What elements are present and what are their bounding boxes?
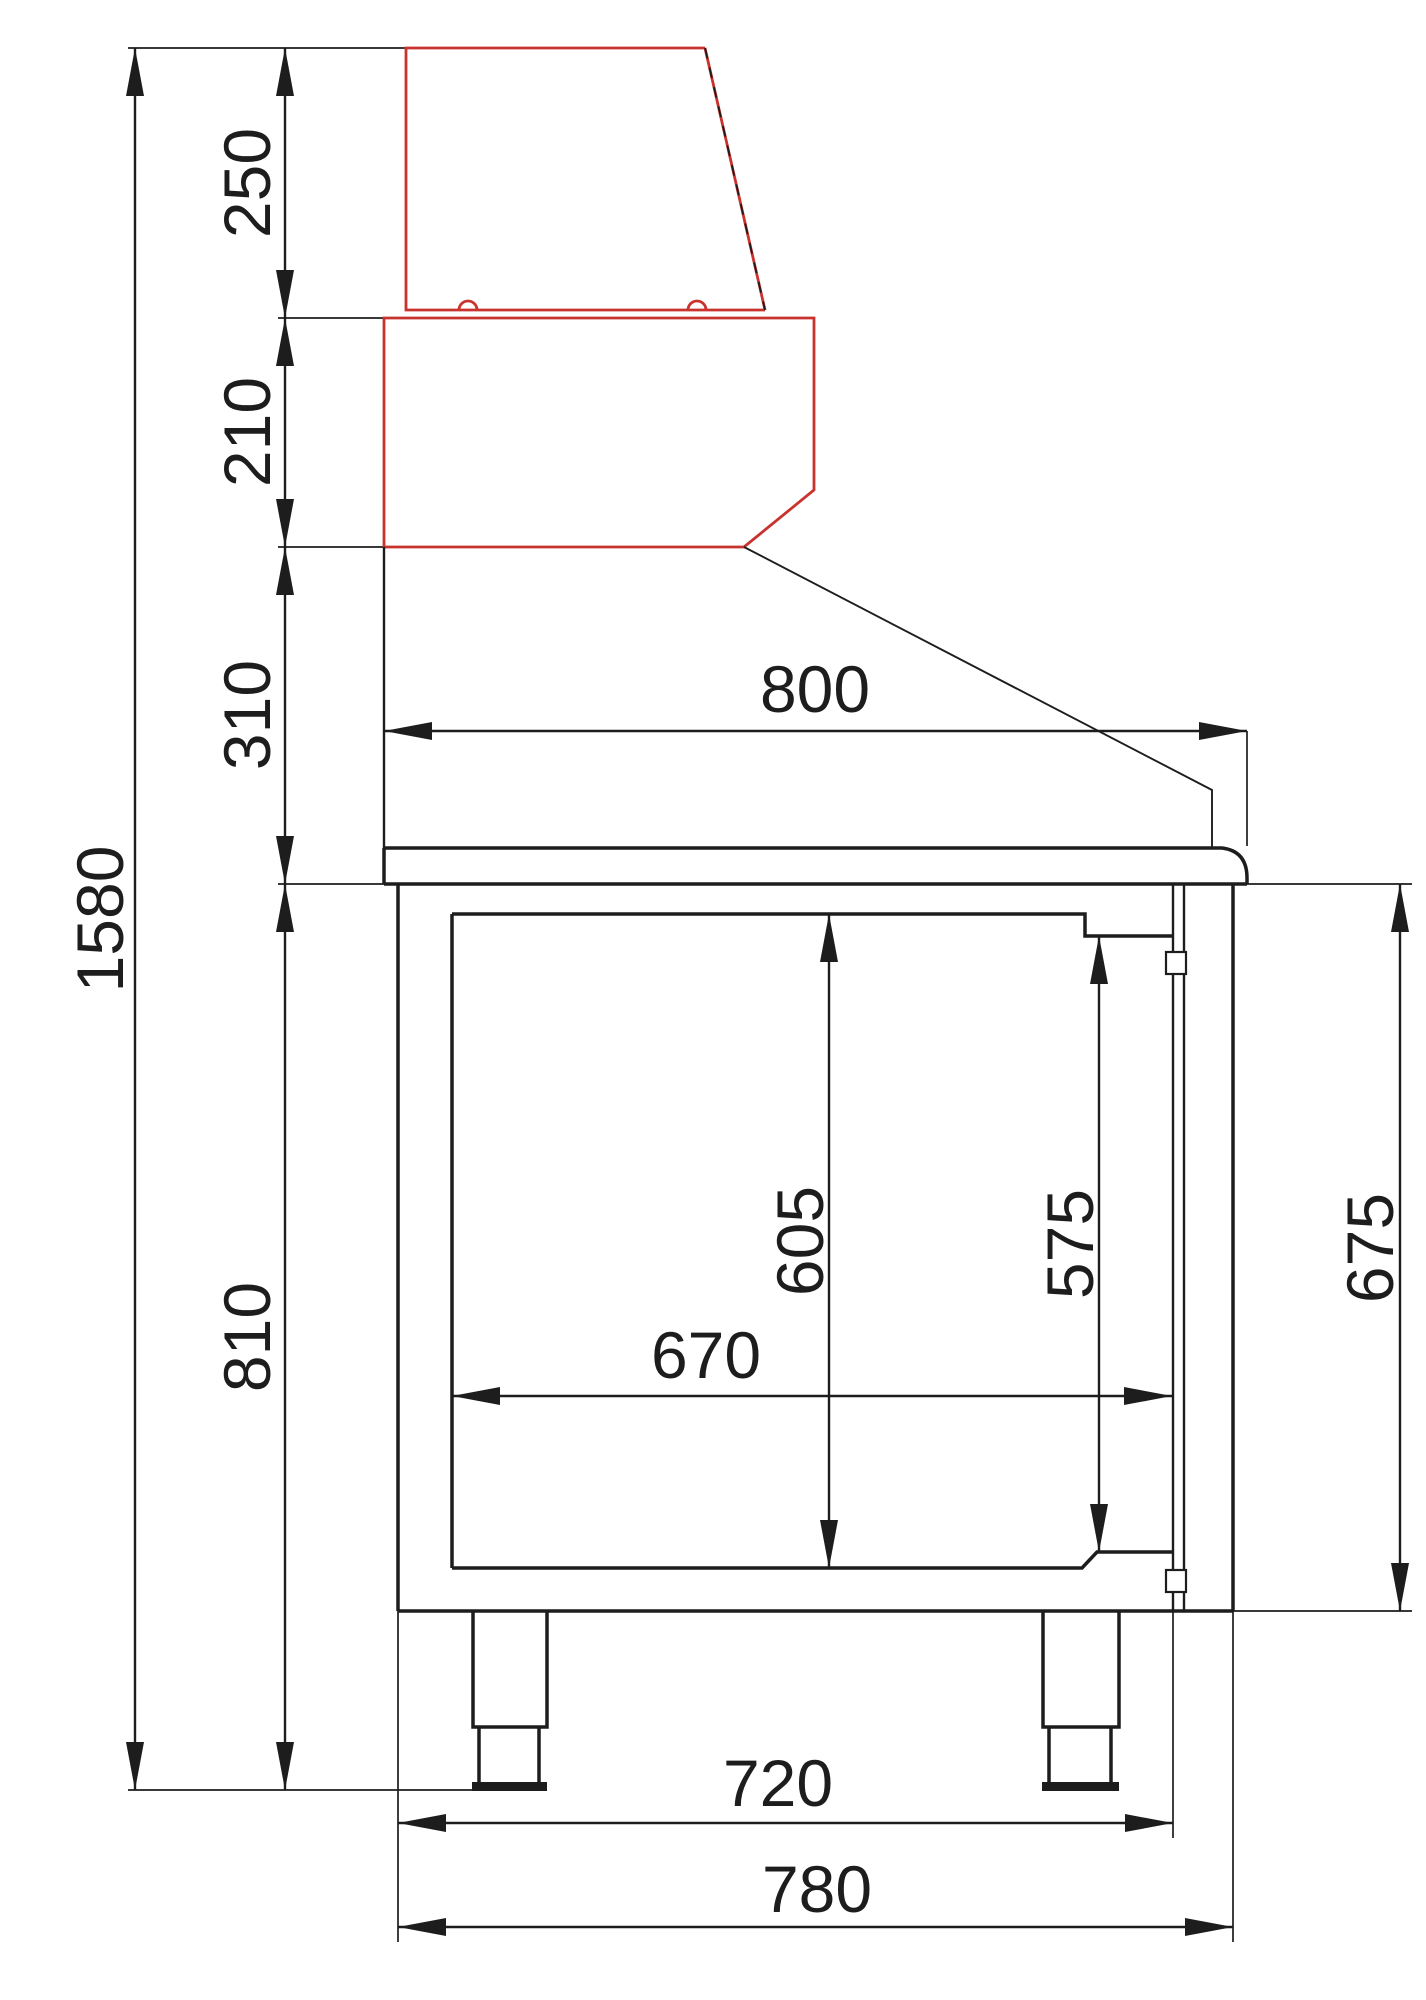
left-leg-base [472,1782,547,1791]
dim-overall-depth-label: 780 [762,1852,872,1926]
dim-pan-rail-height-label: 210 [210,377,284,487]
interior-top [452,914,1172,936]
arrowhead [452,1387,500,1405]
drawing-page: 1580 250 210 310 810 800 605 575 675 670… [0,0,1426,2000]
dim-base-depth-label: 720 [723,1746,833,1820]
arrowhead [126,1742,144,1790]
arrowhead [820,914,838,962]
arrowhead [1199,722,1247,740]
right-leg-upper [1043,1611,1119,1727]
dim-hood-height-label: 250 [210,128,284,238]
dim-interior-height-rear-label: 605 [763,1186,837,1296]
arrowhead [1124,1387,1172,1405]
technical-drawing-canvas: 1580 250 210 310 810 800 605 575 675 670… [0,0,1426,2000]
arrowhead [384,722,432,740]
dim-splashback-height-label: 310 [210,660,284,770]
dim-body-height-label: 810 [210,1282,284,1392]
arrowhead [820,1520,838,1568]
door-hinge-bottom [1166,1570,1186,1592]
right-leg-base [1042,1782,1119,1791]
arrowhead [276,318,294,366]
arrowhead [1185,1918,1233,1936]
arrowhead [276,499,294,547]
extension-lines [128,48,1412,1942]
door-hinge-top [1166,952,1186,974]
dim-overall-height-label: 1580 [63,846,137,993]
dim-interior-height-front-label: 575 [1033,1189,1107,1299]
arrowhead [398,1814,446,1832]
right-leg-foot [1049,1727,1111,1784]
pan-rail-outline [384,318,814,547]
dim-worktop-depth-label: 800 [760,652,870,726]
left-leg-foot [479,1727,539,1784]
dim-door-height-label: 675 [1333,1193,1407,1303]
pan-rail-section [384,318,814,547]
glass-display-hood [406,48,765,310]
arrowhead [1391,884,1409,932]
arrowhead [276,270,294,318]
arrowhead [126,48,144,96]
arrowhead [1090,1504,1108,1552]
worktop-top-surface [384,848,1247,884]
arrowhead [276,836,294,884]
hood-outline [406,48,765,310]
interior-bottom [452,1552,1172,1568]
dim-interior-depth-label: 670 [651,1318,761,1392]
dimension-labels: 1580 250 210 310 810 800 605 575 675 670… [63,128,1407,1926]
arrowhead [276,884,294,932]
arrowhead [276,1742,294,1790]
arrowhead [1391,1563,1409,1611]
arrowhead [1125,1814,1173,1832]
arrowhead [276,48,294,96]
arrowhead [1090,936,1108,984]
arrowhead [398,1918,446,1936]
left-leg-upper [473,1611,547,1727]
dimension-lines [126,48,1409,1936]
arrowhead [276,547,294,595]
